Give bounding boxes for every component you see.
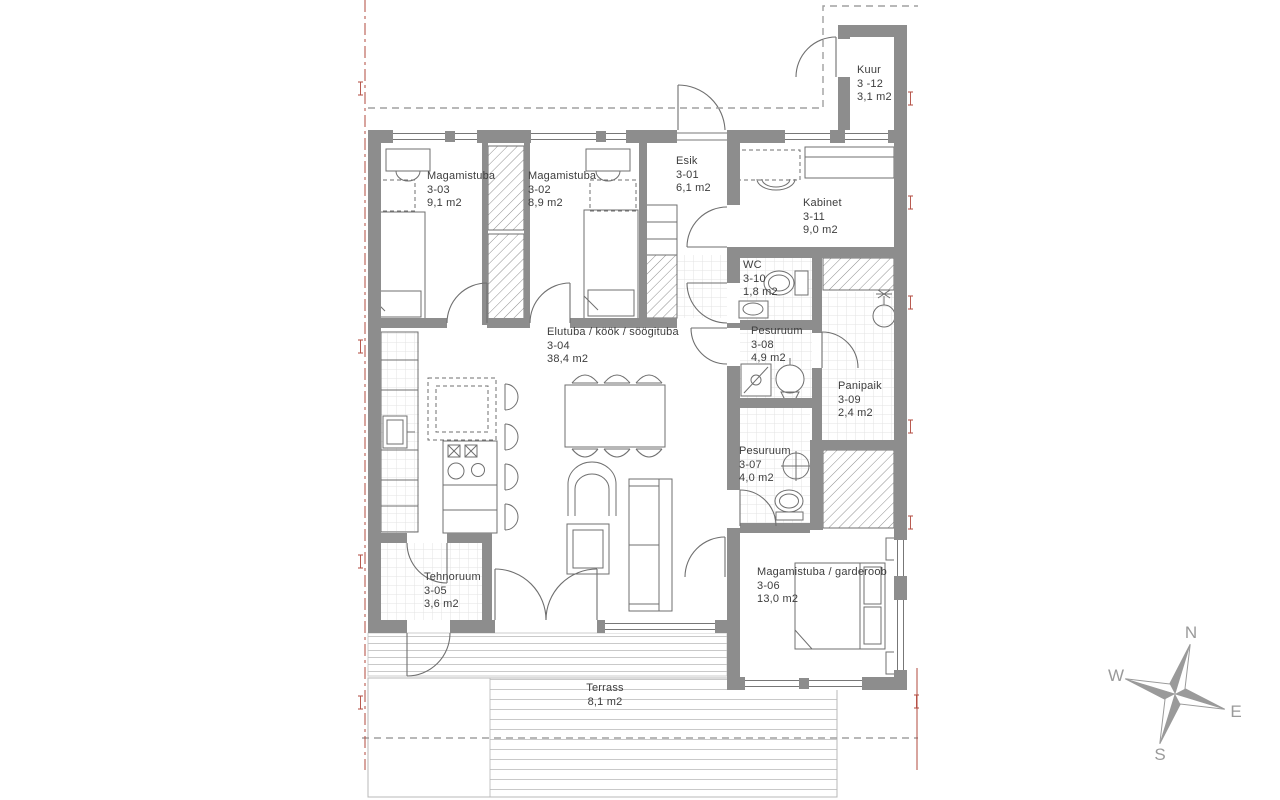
terrace-name: Terrass: [540, 682, 670, 696]
closet-esik: [645, 205, 677, 318]
window-3-02: [531, 130, 626, 143]
floor-plan-canvas: N W E S Magamistuba 3-03 9,1 m2 Magamist…: [0, 0, 1280, 800]
room-name: Kabinet: [803, 197, 842, 211]
room-name: Pesuruum: [739, 445, 791, 459]
french-door-right: [546, 569, 597, 620]
dining-table: [565, 375, 665, 457]
room-number: 3-05: [424, 585, 481, 599]
room-area: 9,0 m2: [803, 224, 842, 238]
door-3-06: [685, 537, 725, 577]
bed-3-02: [584, 210, 638, 323]
room-number: 3-09: [838, 394, 882, 408]
door-kuur: [796, 37, 836, 77]
room-number: 3-08: [751, 339, 803, 353]
room-area: 1,8 m2: [743, 286, 778, 300]
room-name: Kuur: [857, 64, 892, 78]
door-3-08: [691, 328, 727, 364]
window-3-03: [393, 130, 477, 143]
room-number: 3 -12: [857, 78, 892, 92]
sofa: [629, 479, 672, 611]
french-door-left: [495, 569, 546, 620]
room-name: Magamistuba: [528, 170, 596, 184]
room-name: Tehnoruum: [424, 571, 481, 585]
compass-north-label: N: [1185, 623, 1197, 642]
compass-east-label: E: [1230, 702, 1241, 721]
room-area: 13,0 m2: [757, 593, 887, 607]
toilet-3-07: [775, 490, 803, 520]
terrace-label: Terrass 8,1 m2: [540, 682, 670, 709]
room-number: 3-07: [739, 459, 791, 473]
front-door-opening: [677, 130, 727, 143]
room-label-kabinet-3-11: Kabinet 3-11 9,0 m2: [803, 197, 842, 238]
armchair: [568, 462, 616, 516]
door-3-03: [447, 283, 487, 323]
compass-rose: N W E S: [1108, 623, 1242, 764]
room-number: 3-04: [547, 340, 679, 354]
room-area: 9,1 m2: [427, 197, 495, 211]
room-area: 4,9 m2: [751, 352, 803, 366]
stove: [443, 441, 497, 533]
room-label-panipaik-3-09: Panipaik 3-09 2,4 m2: [838, 380, 882, 421]
window-3-06-south: [745, 677, 862, 690]
floor-plan-drawing: N W E S: [0, 0, 1280, 800]
window-kuur-wall: [845, 130, 888, 143]
kitchen-island: [428, 378, 496, 440]
closet-kabinet: [823, 258, 894, 290]
room-area: 3,1 m2: [857, 91, 892, 105]
door-3-02: [530, 283, 570, 323]
room-label-wc-3-10: WC 3-10 1,8 m2: [743, 259, 778, 300]
room-area: 2,4 m2: [838, 407, 882, 421]
door-kabinet: [687, 207, 727, 247]
room-name: Panipaik: [838, 380, 882, 394]
compass-west-label: W: [1108, 666, 1124, 685]
room-number: 3-02: [528, 184, 596, 198]
room-label-magamistuba-3-06: Magamistuba / garderoob 3-06 13,0 m2: [757, 566, 887, 607]
room-label-tehnoruum-3-05: Tehnoruum 3-05 3,6 m2: [424, 571, 481, 612]
room-number: 3-03: [427, 184, 495, 198]
washing-machine: [741, 364, 771, 396]
window-living-south: [605, 620, 715, 633]
room-name: Pesuruum: [751, 325, 803, 339]
room-area: 4,0 m2: [739, 472, 791, 486]
room-label-pesuruum-3-07: Pesuruum 3-07 4,0 m2: [739, 445, 791, 486]
desk-kabinet: [735, 147, 894, 190]
bar-stools: [505, 384, 518, 530]
room-number: 3-10: [743, 273, 778, 287]
room-label-elutuba-3-04: Elutuba / köök / söögituba 3-04 38,4 m2: [547, 326, 679, 367]
room-name: Magamistuba / garderoob: [757, 566, 887, 580]
room-label-esik-3-01: Esik 3-01 6,1 m2: [676, 155, 711, 196]
room-label-kuur-3-12: Kuur 3 -12 3,1 m2: [857, 64, 892, 105]
room-label-magamistuba-3-02: Magamistuba 3-02 8,9 m2: [528, 170, 596, 211]
window-3-06-east-b: [894, 600, 907, 670]
coffee-table: [567, 524, 609, 574]
room-area: 8,9 m2: [528, 197, 596, 211]
room-name: Esik: [676, 155, 711, 169]
room-number: 3-11: [803, 211, 842, 225]
window-kabinet: [785, 130, 830, 143]
compass-south-label: S: [1154, 745, 1165, 764]
window-3-06-east-a: [894, 540, 907, 576]
room-area: 3,6 m2: [424, 598, 481, 612]
room-label-pesuruum-3-08: Pesuruum 3-08 4,9 m2: [751, 325, 803, 366]
room-label-magamistuba-3-03: Magamistuba 3-03 9,1 m2: [427, 170, 495, 211]
room-number: 3-01: [676, 169, 711, 183]
terrace-deck: [368, 633, 837, 797]
room-name: WC: [743, 259, 778, 273]
room-name: Elutuba / köök / söögituba: [547, 326, 679, 340]
room-area: 6,1 m2: [676, 182, 711, 196]
room-name: Magamistuba: [427, 170, 495, 184]
garderoob-wardrobe: [823, 450, 894, 528]
room-area: 38,4 m2: [547, 353, 679, 367]
room-number: 3-06: [757, 580, 887, 594]
terrace-area: 8,1 m2: [540, 696, 670, 710]
